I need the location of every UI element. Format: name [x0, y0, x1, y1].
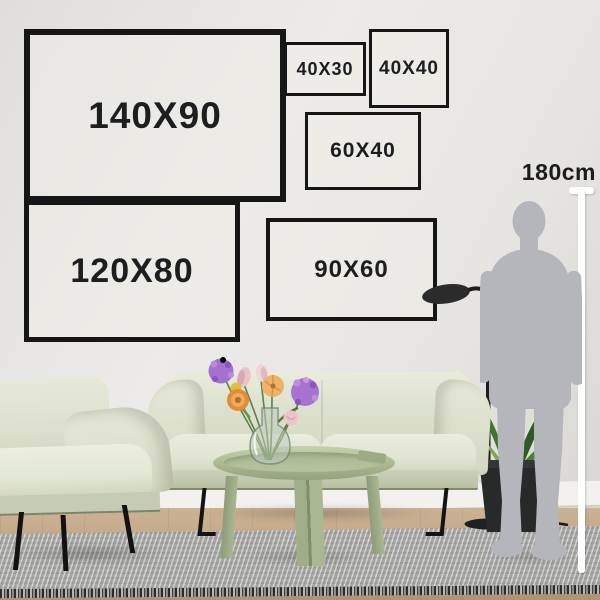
height-label: 180cm	[504, 159, 596, 186]
wall-art-size-guide: 140X90 40X30 40X40 60X40 120X80 90X60 18…	[0, 0, 600, 600]
frame-size-label: 40X30	[296, 59, 353, 80]
frame-size-label: 40X40	[379, 58, 439, 80]
frame-size-label: 140X90	[88, 95, 222, 137]
frame-120x80: 120X80	[24, 200, 240, 342]
person-silhouette-icon	[480, 199, 582, 561]
frame-size-label: 60X40	[330, 139, 396, 163]
frame-90x60: 90X60	[266, 218, 437, 321]
frame-140x90: 140X90	[24, 29, 286, 202]
frame-60x40: 60X40	[305, 112, 421, 190]
frame-size-label: 90X60	[314, 256, 388, 284]
frame-size-label: 120X80	[70, 252, 193, 291]
frame-40x40: 40X40	[369, 29, 449, 108]
flower-vase-icon	[198, 350, 338, 470]
table-leg-center	[294, 478, 325, 566]
frame-40x30: 40X30	[284, 42, 366, 96]
